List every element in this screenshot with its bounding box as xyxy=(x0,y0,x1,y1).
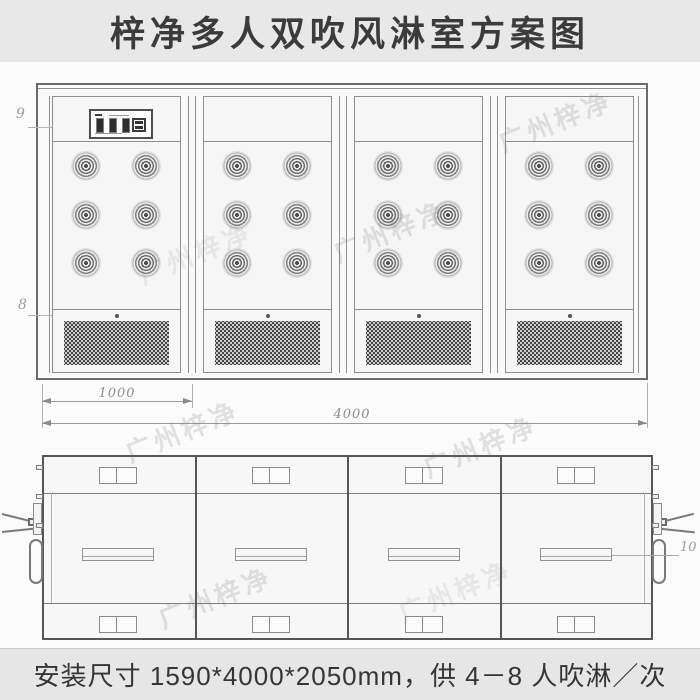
door-handle xyxy=(652,539,666,584)
callout-10-label: 10 xyxy=(680,540,697,555)
closer-bracket xyxy=(653,503,662,535)
inner-wall-line xyxy=(644,493,645,603)
footer-bar: 安装尺寸 1590*4000*2050mm，供 4－8 人吹淋／次 xyxy=(0,648,700,700)
filter-box xyxy=(557,467,595,484)
closer-bracket xyxy=(33,503,42,535)
light-fixture xyxy=(82,548,154,561)
hinge-mark xyxy=(652,523,659,528)
light-fixture xyxy=(388,548,460,561)
filter-box xyxy=(557,616,595,633)
scheme-drawing-page: 梓净多人双吹风淋室方案图 9 8 1000 4000 xyxy=(0,0,700,700)
filter-box xyxy=(252,616,290,633)
light-fixture xyxy=(540,548,612,561)
hinge-mark xyxy=(652,494,659,499)
plan-module-divider xyxy=(347,455,349,640)
callout-10-leader xyxy=(611,555,679,556)
hinge-mark xyxy=(36,494,43,499)
light-fixture xyxy=(235,548,307,561)
filter-box xyxy=(252,467,290,484)
door-handle xyxy=(29,539,43,584)
filter-box xyxy=(99,467,137,484)
hinge-mark xyxy=(36,465,43,470)
hinge-mark xyxy=(652,465,659,470)
inner-wall-line xyxy=(51,493,52,603)
installation-size-text: 安装尺寸 1590*4000*2050mm，供 4－8 人吹淋／次 xyxy=(34,656,667,693)
plan-module-divider xyxy=(500,455,502,640)
hinge-mark xyxy=(36,523,43,528)
filter-box xyxy=(99,616,137,633)
